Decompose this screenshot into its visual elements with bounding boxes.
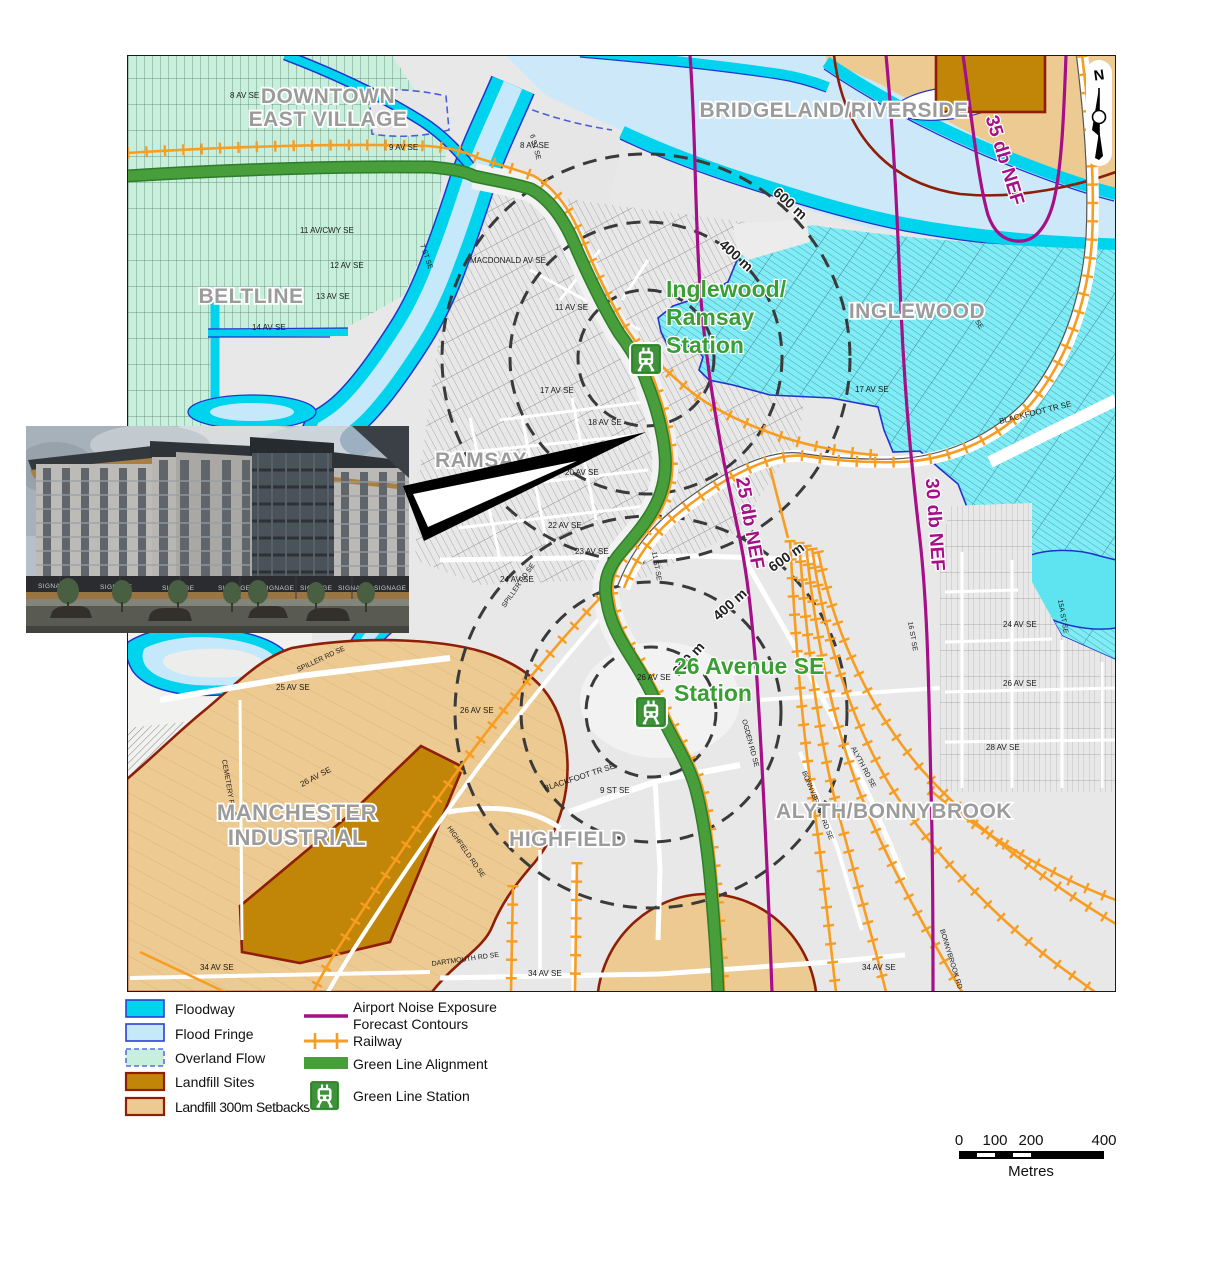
svg-text:N: N (1093, 67, 1106, 84)
svg-text:MACDONALD AV SE: MACDONALD AV SE (470, 256, 546, 265)
svg-text:INDUSTRIAL: INDUSTRIAL (228, 825, 366, 850)
svg-text:11 AV SE: 11 AV SE (555, 303, 588, 312)
svg-text:Forecast Contours: Forecast Contours (353, 1016, 468, 1032)
svg-text:Railway: Railway (353, 1033, 402, 1049)
svg-text:Station: Station (666, 332, 744, 358)
svg-text:MANCHESTER: MANCHESTER (217, 800, 377, 825)
svg-text:34 AV SE: 34 AV SE (862, 963, 896, 972)
svg-text:0: 0 (955, 1132, 963, 1149)
svg-text:22 AV SE: 22 AV SE (548, 521, 582, 530)
svg-text:100: 100 (982, 1132, 1007, 1149)
svg-text:Green Line Alignment: Green Line Alignment (353, 1056, 488, 1072)
svg-text:34 AV SE: 34 AV SE (528, 969, 562, 978)
svg-text:HIGHFIELD: HIGHFIELD (509, 828, 627, 851)
svg-text:ALYTH/BONNYBROOK: ALYTH/BONNYBROOK (776, 800, 1012, 823)
svg-text:Ramsay: Ramsay (666, 304, 754, 330)
svg-text:INGLEWOOD: INGLEWOOD (849, 300, 985, 323)
svg-text:24 AV SE: 24 AV SE (1003, 620, 1037, 629)
svg-text:28 AV SE: 28 AV SE (986, 743, 1020, 752)
svg-text:Floodway: Floodway (175, 1001, 235, 1017)
svg-text:17 AV SE: 17 AV SE (540, 386, 574, 395)
svg-text:Landfill Sites: Landfill Sites (175, 1074, 254, 1090)
svg-text:Green Line Station: Green Line Station (353, 1088, 470, 1104)
svg-text:Flood Fringe: Flood Fringe (175, 1026, 254, 1042)
svg-text:BRIDGELAND/RIVERSIDE: BRIDGELAND/RIVERSIDE (699, 99, 968, 122)
svg-text:8 AV SE: 8 AV SE (230, 91, 259, 100)
svg-text:Landfill 300m Setbacks: Landfill 300m Setbacks (175, 1099, 310, 1115)
svg-text:17 AV SE: 17 AV SE (855, 385, 889, 394)
svg-text:18 AV SE: 18 AV SE (588, 418, 622, 427)
svg-text:23 AV SE: 23 AV SE (575, 547, 609, 556)
svg-text:Metres: Metres (1008, 1163, 1054, 1180)
svg-text:EAST VILLAGE: EAST VILLAGE (249, 108, 408, 131)
svg-text:Overland Flow: Overland Flow (175, 1050, 266, 1066)
svg-text:11 AV/CWY SE: 11 AV/CWY SE (300, 226, 354, 235)
svg-text:Airport Noise Exposure: Airport Noise Exposure (353, 999, 497, 1015)
svg-text:25 AV SE: 25 AV SE (276, 683, 310, 692)
svg-text:9 ST SE: 9 ST SE (600, 786, 630, 795)
svg-text:400: 400 (1091, 1132, 1116, 1149)
svg-text:Station: Station (674, 680, 752, 706)
svg-text:26 AV SE: 26 AV SE (460, 706, 494, 715)
svg-text:200: 200 (1018, 1132, 1043, 1149)
svg-text:13 AV SE: 13 AV SE (316, 292, 350, 301)
svg-text:34 AV SE: 34 AV SE (200, 963, 234, 972)
svg-text:12 AV SE: 12 AV SE (330, 261, 364, 270)
svg-text:Inglewood/: Inglewood/ (666, 276, 787, 302)
svg-text:20 AV SE: 20 AV SE (565, 468, 599, 477)
svg-text:DOWNTOWN: DOWNTOWN (261, 85, 395, 108)
svg-text:26 AV SE: 26 AV SE (637, 673, 671, 682)
svg-text:14 AV SE: 14 AV SE (252, 323, 286, 332)
svg-text:26 AV SE: 26 AV SE (1003, 679, 1037, 688)
svg-text:BELTLINE: BELTLINE (198, 285, 303, 308)
svg-text:9 AV SE: 9 AV SE (389, 143, 418, 152)
svg-text:SIGNAGE: SIGNAGE (374, 585, 407, 592)
svg-text:26 Avenue SE: 26 Avenue SE (674, 653, 824, 679)
